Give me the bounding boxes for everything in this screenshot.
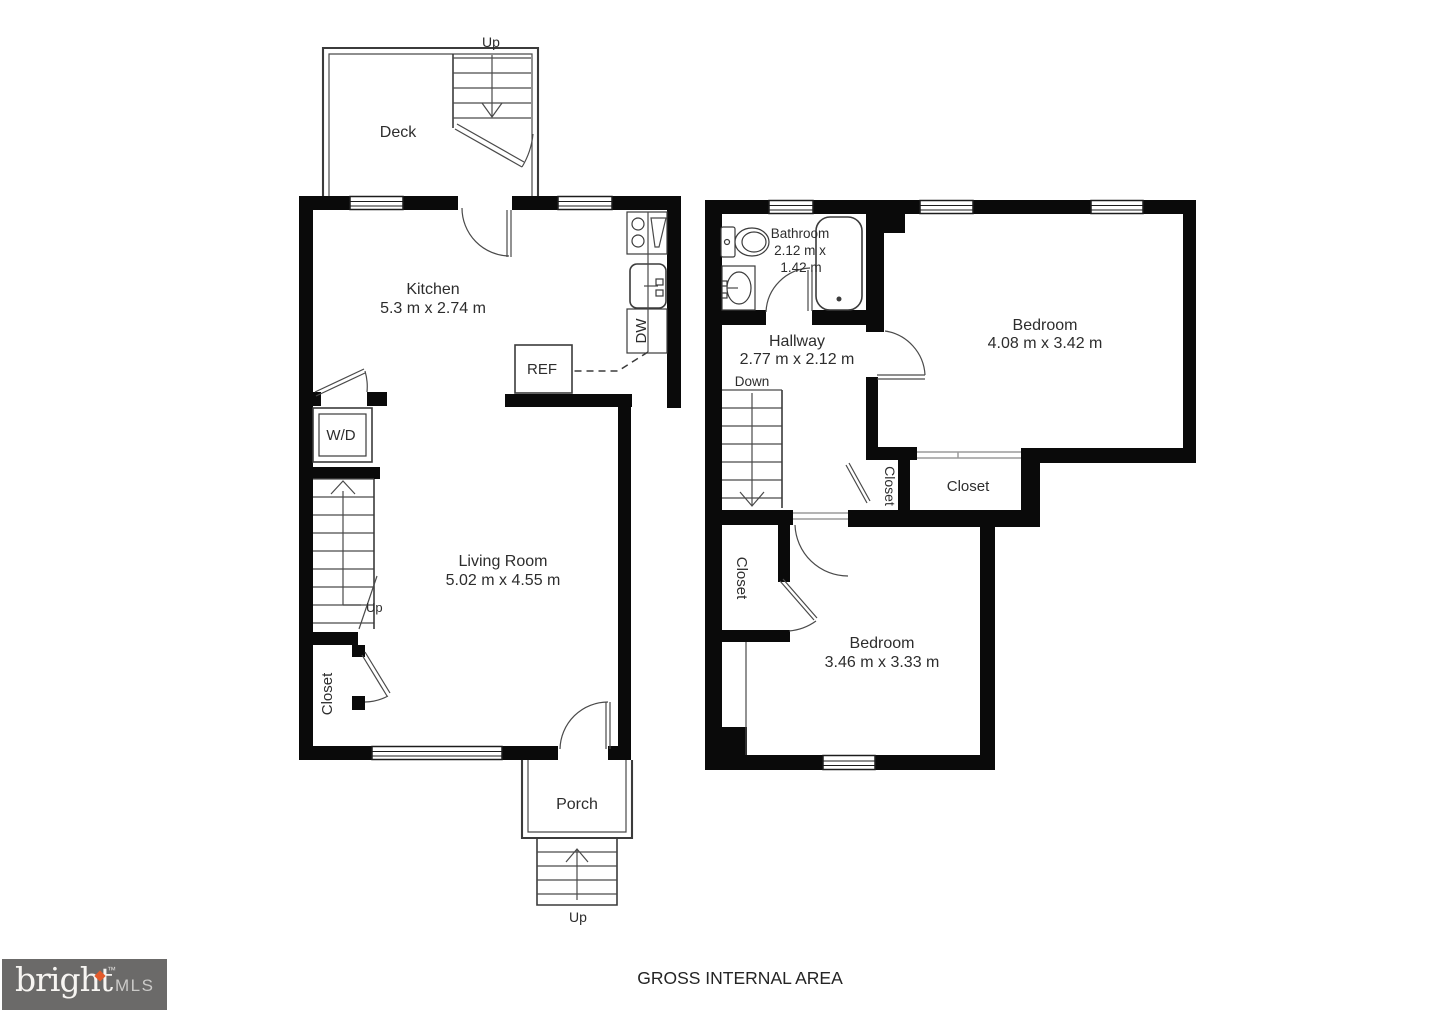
bedroom1-dims: 4.08 m x 3.42 m (988, 335, 1103, 352)
floor1-walls (299, 196, 681, 760)
hallway-label: Hallway (769, 333, 825, 350)
floor1: Up Deck (299, 34, 681, 925)
porch-label: Porch (556, 796, 598, 813)
stairs-arrow-shaft (343, 491, 361, 605)
bathroom-dims-1: 2.12 m x (774, 243, 826, 258)
bedroom2-closet-door (780, 579, 817, 631)
floorplan-page: Up Deck (0, 0, 1440, 1017)
door-arc (462, 208, 509, 256)
door-arc (789, 621, 816, 631)
deck-outline (323, 48, 538, 196)
bedroom2-door (793, 513, 848, 576)
wd-door-leaf (315, 369, 365, 396)
deck-door (455, 124, 533, 167)
kitchen-label: Kitchen (406, 281, 459, 298)
closet-door-arc (365, 696, 388, 702)
counter-dashed (572, 352, 648, 371)
deck-door-leaf (455, 124, 524, 167)
window (1091, 201, 1143, 214)
door-leaf (780, 579, 817, 620)
floorplan-drawing: Up Deck (0, 0, 1440, 1017)
bedroom1-label: Bedroom (1013, 317, 1078, 334)
door-leaf (846, 463, 870, 503)
door-leaf (808, 270, 812, 311)
living-room-dims: 5.02 m x 4.55 m (446, 572, 561, 589)
window (769, 201, 813, 214)
hall-closet-door (846, 463, 870, 503)
porch (522, 760, 632, 905)
kitchen-door-gap (458, 195, 512, 211)
deck-stairs-up-label: Up (482, 34, 500, 50)
door-arc (795, 525, 848, 576)
wd-label: W/D (326, 427, 355, 444)
bedroom1-closet-opening (917, 452, 1021, 458)
floor1-closet-label: Closet (319, 672, 336, 715)
summary-title: GROSS INTERNAL AREA (390, 967, 1090, 990)
bathroom-dims-2: 1.42 m (780, 260, 821, 275)
door-arc (885, 331, 925, 375)
logo-suffix: MLS (115, 976, 154, 996)
logo-trademark: ™ (107, 965, 116, 975)
area-summary: GROSS INTERNAL AREA FLOOR 1: 460 sp.ft F… (390, 921, 1090, 1017)
brightmls-logo: bright ™ MLS (2, 959, 167, 1010)
kitchen-dims: 5.3 m x 2.74 m (380, 300, 486, 317)
toilet (721, 227, 769, 257)
fridge-label: REF (527, 361, 557, 378)
living-door-gap (558, 745, 608, 761)
wd-door-arc (365, 371, 367, 392)
door-leaf (507, 210, 511, 257)
bathroom-label: Bathroom (771, 226, 830, 241)
floor1-windows (350, 195, 612, 761)
deck-stairs (453, 54, 531, 128)
kitchen-entry-door (462, 208, 511, 257)
window (558, 197, 612, 210)
bathroom-sink (722, 266, 755, 310)
window (823, 756, 875, 770)
porch-steps (537, 838, 617, 905)
door-threshold (793, 513, 848, 519)
stairs-down-label: Down (735, 374, 770, 389)
stairs-up-label: Up (366, 600, 383, 615)
living-room-label: Living Room (459, 553, 548, 570)
floor2-stairs (722, 390, 782, 508)
window (920, 201, 973, 214)
deck-label: Deck (380, 124, 417, 141)
hall-closet-label: Closet (882, 466, 898, 506)
floor1-closet (362, 652, 390, 702)
floor2: Bathroom 2.12 m x 1.42 m Hallway 2.77 m … (705, 200, 1196, 770)
deck-outline-inner (329, 54, 532, 196)
laundry-closet (313, 369, 372, 462)
living-porch-door (560, 702, 610, 749)
bedroom2-dims: 3.46 m x 3.33 m (825, 654, 940, 671)
bedroom2-closet-label: Closet (733, 557, 750, 600)
window (350, 197, 403, 210)
bedroom1-door (877, 331, 925, 379)
stove (627, 212, 667, 254)
closet-door-leaf (362, 652, 390, 696)
deck: Up Deck (323, 34, 538, 196)
bedroom2-label: Bedroom (850, 635, 915, 652)
dishwasher-label: DW (633, 318, 650, 344)
window (372, 747, 502, 760)
hallway-dims: 2.77 m x 2.12 m (740, 351, 855, 368)
door-arc (560, 702, 608, 749)
bedroom1-closet-label: Closet (947, 478, 990, 495)
floor1-stairs: Up (313, 479, 383, 629)
door-leaf (877, 375, 925, 379)
door-leaf (606, 702, 610, 749)
